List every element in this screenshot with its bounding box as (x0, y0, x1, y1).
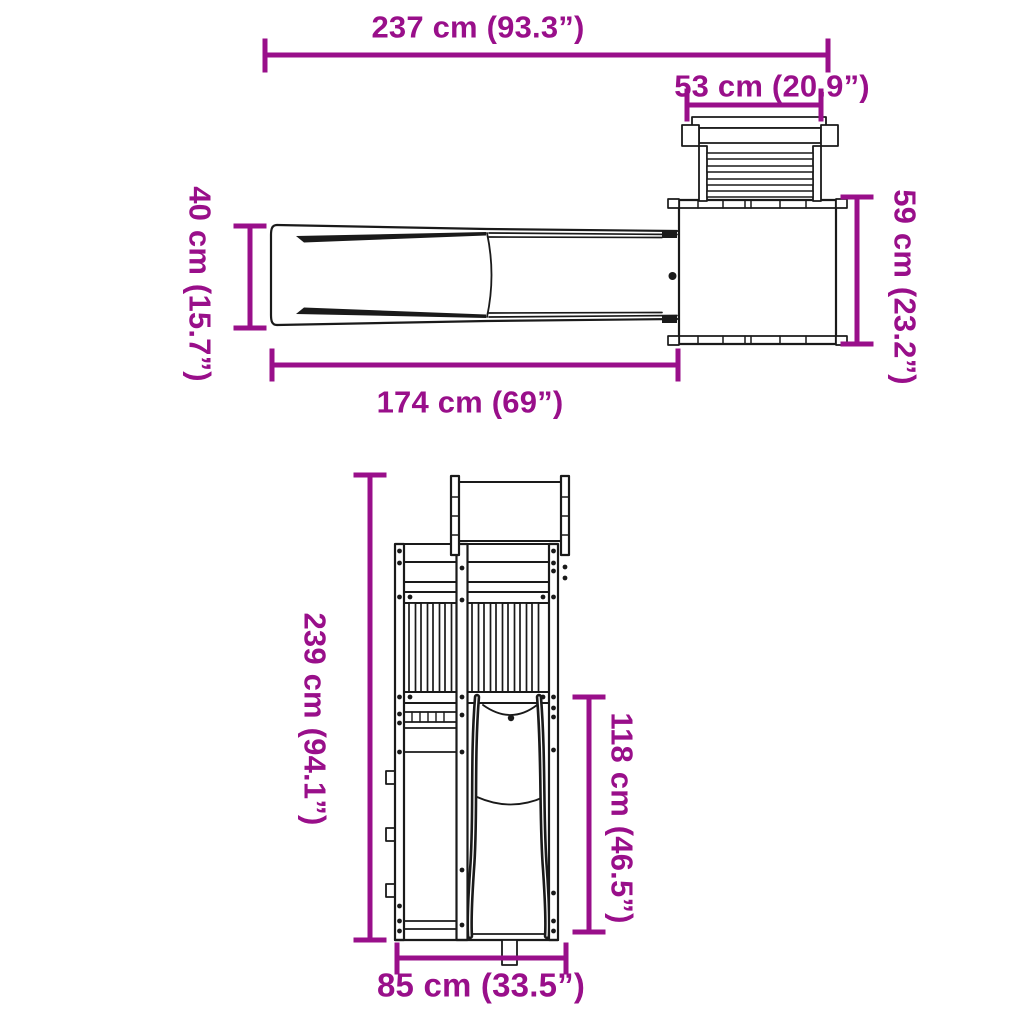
dim-label-total-height: 239 cm (94.1”) (300, 612, 331, 825)
dim-label-platform-depth: 59 cm (23.2”) (890, 189, 921, 385)
platform-top-view (668, 199, 847, 345)
dim-line-239 (356, 475, 384, 940)
tower-planks-front (404, 544, 549, 582)
dim-label-overall-length: 237 cm (93.3”) (371, 12, 584, 43)
dim-line-237 (265, 41, 828, 70)
slide-top-view (271, 225, 677, 325)
dim-label-climbing-wall-width: 53 cm (20.9”) (674, 71, 870, 102)
dim-line-118 (575, 697, 603, 932)
dimension-diagram: 237 cm (93.3”) 53 cm (20.9”) 40 cm (15.7… (0, 0, 1024, 1024)
climbing-wall-top-view (682, 117, 838, 201)
dim-line-59 (843, 197, 871, 344)
dim-label-slide-height: 118 cm (46.5”) (607, 712, 638, 923)
diagram-canvas (0, 0, 1024, 1024)
dim-line-174 (272, 351, 678, 379)
front-view-drawing (386, 476, 569, 965)
slide-front-view (468, 697, 550, 936)
dim-line-40 (236, 226, 264, 328)
dim-label-slide-width: 40 cm (15.7”) (185, 186, 216, 382)
dim-label-tower-width: 85 cm (33.5”) (377, 969, 585, 1002)
dim-label-slide-length: 174 cm (69”) (377, 387, 564, 418)
railing-front (404, 592, 549, 703)
base-front (395, 940, 558, 965)
top-view-drawing (271, 117, 847, 345)
